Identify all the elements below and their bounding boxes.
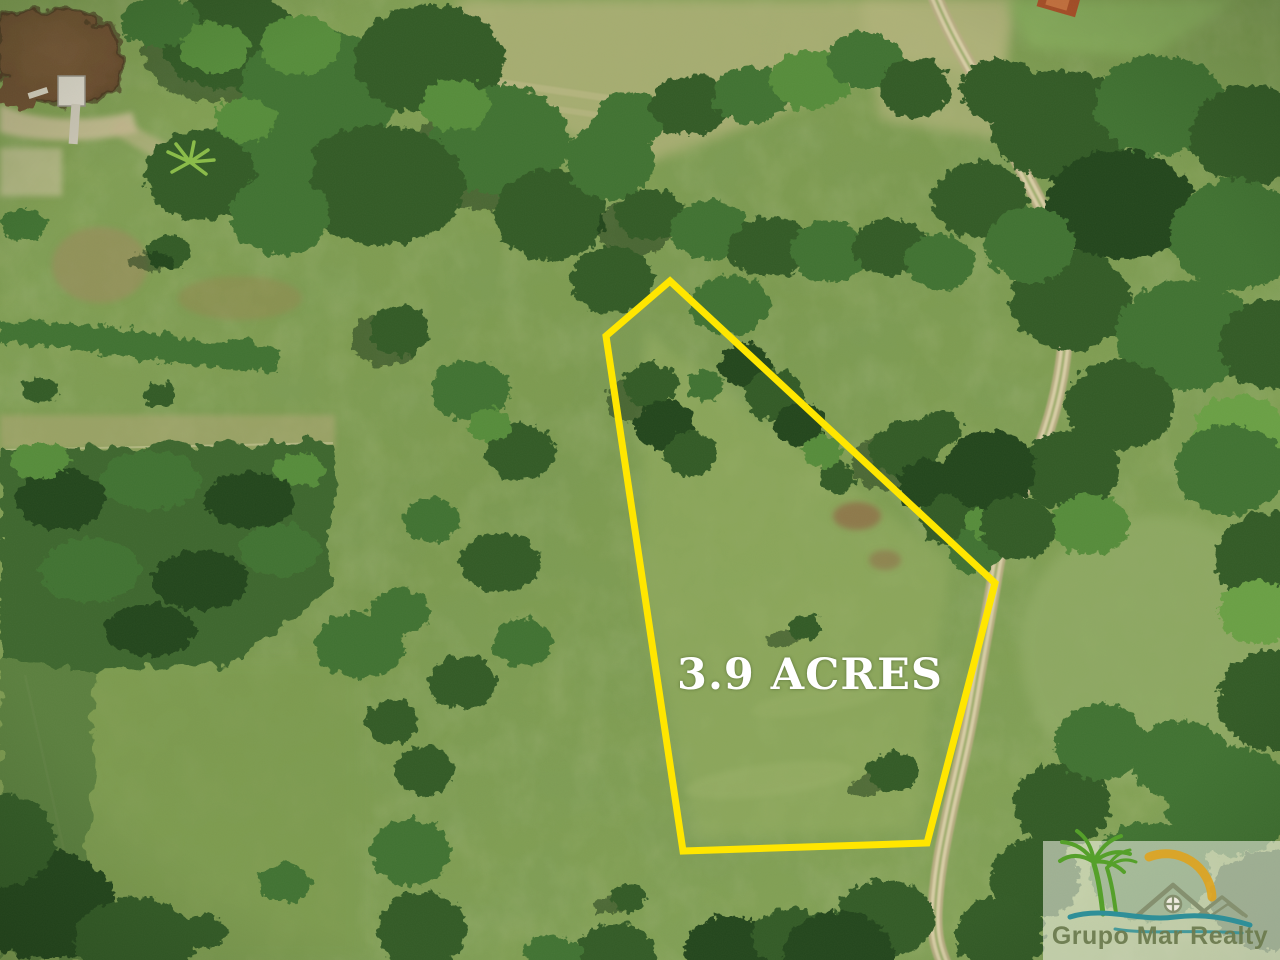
- aerial-photo: ,: [0, 0, 1280, 960]
- photo-vignette: [0, 0, 1280, 960]
- logo-brand-name: Grupo Mar Realty: [1052, 922, 1268, 950]
- watermark-logo: Grupo Mar Realty: [1043, 831, 1280, 960]
- acreage-label: 3.9 ACRES: [677, 650, 943, 700]
